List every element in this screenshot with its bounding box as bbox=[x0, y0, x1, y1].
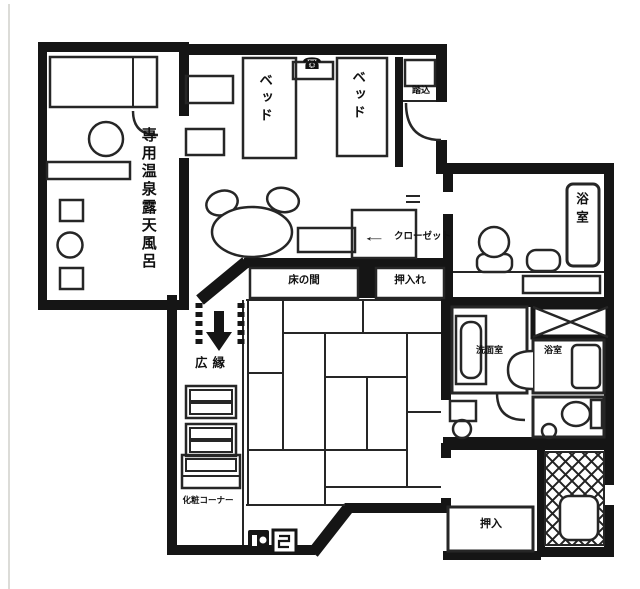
closet-arrow-icon: ← bbox=[362, 230, 387, 245]
entrance-area bbox=[403, 60, 441, 202]
label-tokonoma: 床の間 bbox=[252, 275, 356, 287]
label-vanity-corner: 化粧コーナー bbox=[170, 496, 246, 506]
down-arrow-icon bbox=[206, 311, 232, 351]
toilet-bowl bbox=[562, 402, 590, 426]
label-unit-bath: 浴室 bbox=[533, 345, 573, 355]
phone-icon: ☎ bbox=[302, 56, 322, 74]
minibar-sink bbox=[453, 420, 471, 438]
unit-bath-door-arc bbox=[508, 351, 533, 389]
ledge bbox=[47, 162, 130, 179]
storage-x-box bbox=[533, 307, 608, 337]
genkan-mat bbox=[560, 496, 598, 540]
label-veranda: 広縁 bbox=[195, 356, 230, 370]
bedroom-furniture bbox=[186, 58, 416, 258]
tv-stand bbox=[186, 76, 233, 103]
label-bed-right: ベッド bbox=[350, 70, 365, 123]
bath-step bbox=[523, 276, 600, 293]
label-entrance-step: 踏込 bbox=[402, 85, 440, 95]
veranda-furniture bbox=[182, 303, 241, 488]
floor-plan-drawing bbox=[0, 0, 640, 589]
stepping-stone bbox=[60, 200, 83, 221]
label-bed-left: ベッド bbox=[257, 73, 272, 126]
label-upper-closet: 押入れ bbox=[378, 275, 442, 287]
stepping-stone-round bbox=[58, 233, 83, 258]
shoe-cabinet bbox=[405, 60, 435, 86]
table bbox=[212, 207, 292, 257]
label-lower-closet: 押入 bbox=[459, 518, 523, 530]
equipment-icons bbox=[248, 530, 296, 553]
label-closet: クローゼット bbox=[394, 232, 451, 243]
washbasin-bowl bbox=[479, 227, 509, 257]
label-private-open-air-bath: 専用温泉露天風呂 bbox=[139, 127, 156, 271]
entrance-door-arc bbox=[406, 103, 441, 140]
scan-edge bbox=[8, 4, 10, 589]
floor-plan: 専用温泉露天風呂 ベッド ☎ ベッド 踏込 浴室 ← クローゼット 床の間 押入… bbox=[0, 0, 640, 589]
minibar-cabinet bbox=[450, 401, 476, 421]
bath-stool bbox=[527, 250, 560, 271]
luggage-bench bbox=[298, 228, 355, 252]
stepping-stone bbox=[60, 268, 83, 289]
chest bbox=[186, 129, 224, 155]
bath-tub-round bbox=[89, 122, 123, 156]
label-washroom: 洗面室 bbox=[452, 345, 527, 355]
washroom-door-arc bbox=[497, 393, 525, 420]
label-main-bath: 浴室 bbox=[574, 192, 588, 229]
deck-bench bbox=[50, 57, 157, 107]
